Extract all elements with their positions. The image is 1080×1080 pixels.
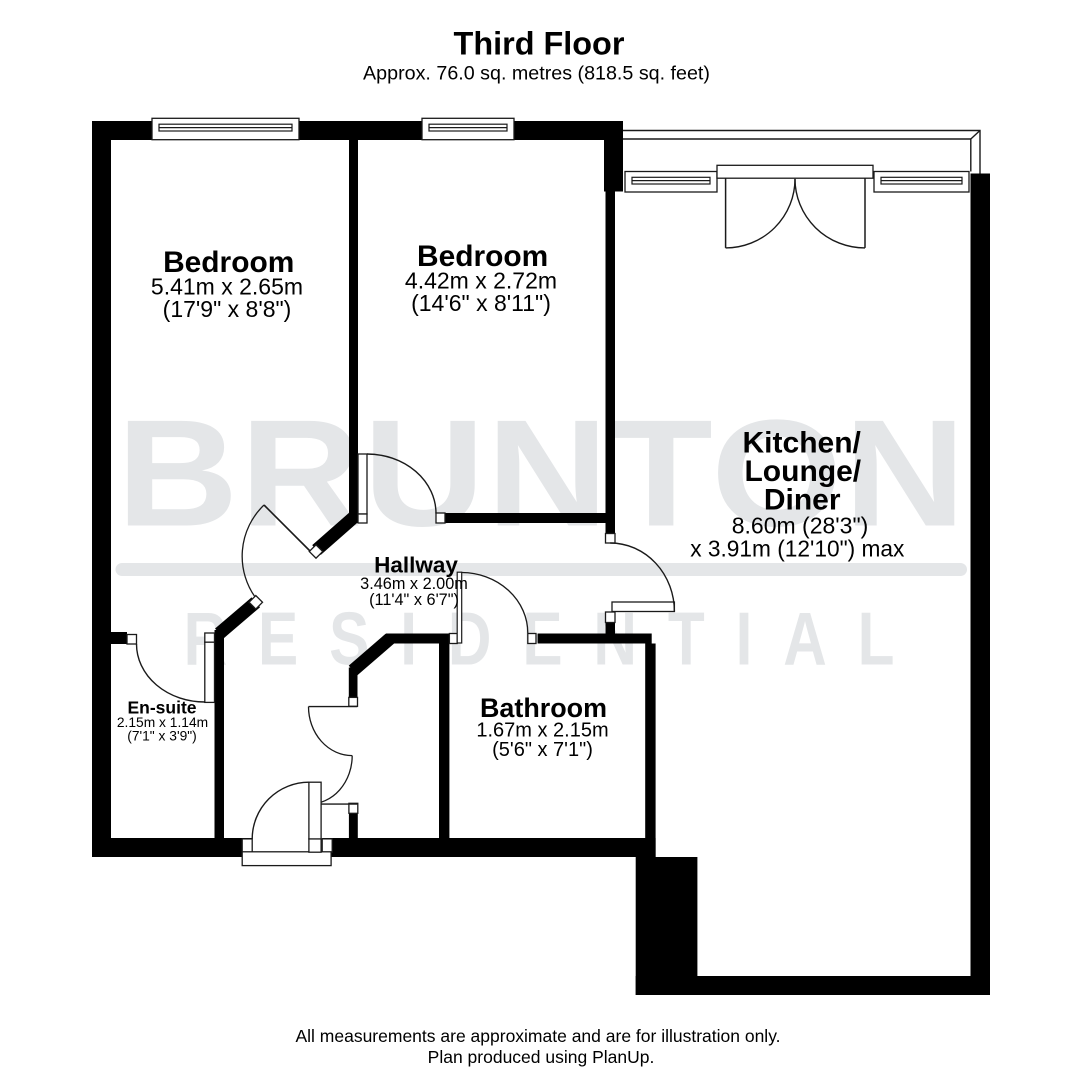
svg-text:(5'6" x 7'1"): (5'6" x 7'1") xyxy=(492,739,593,761)
svg-text:Approx. 76.0 sq. metres (818.5: Approx. 76.0 sq. metres (818.5 sq. feet) xyxy=(363,63,710,85)
svg-text:(17'9" x 8'8"): (17'9" x 8'8") xyxy=(163,296,292,322)
svg-text:All measurements are approxima: All measurements are approximate and are… xyxy=(295,1026,780,1046)
svg-text:Hallway: Hallway xyxy=(374,553,458,578)
svg-text:Bathroom: Bathroom xyxy=(480,693,607,723)
svg-text:x 3.91m (12'10") max: x 3.91m (12'10") max xyxy=(690,535,905,561)
svg-text:Plan produced using PlanUp.: Plan produced using PlanUp. xyxy=(428,1047,655,1067)
svg-text:(14'6" x 8'11"): (14'6" x 8'11") xyxy=(411,290,551,316)
svg-text:Third Floor: Third Floor xyxy=(454,25,625,61)
svg-text:(11'4" x 6'7"): (11'4" x 6'7") xyxy=(369,591,459,609)
svg-text:(7'1" x 3'9"): (7'1" x 3'9") xyxy=(127,729,197,744)
